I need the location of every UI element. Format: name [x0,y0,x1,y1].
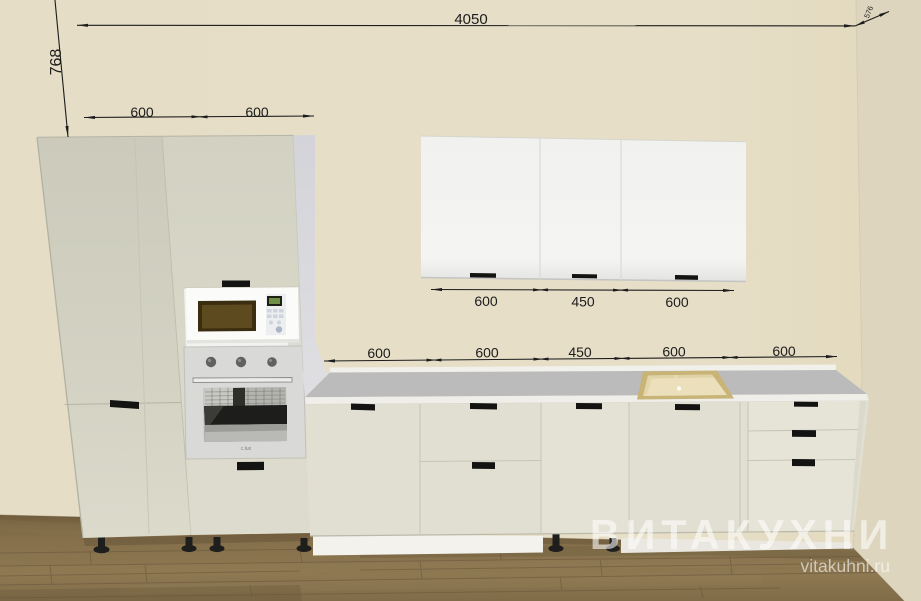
svg-text:ВИТАКУХНИ: ВИТАКУХНИ [590,511,894,558]
svg-text:600: 600 [475,344,499,360]
svg-text:600: 600 [772,343,796,359]
svg-text:600: 600 [245,104,269,120]
svg-text:450: 450 [571,294,595,310]
svg-text:768: 768 [48,49,65,76]
svg-text:c.lux: c.lux [241,446,252,452]
svg-text:vitakuhni.ru: vitakuhni.ru [801,556,891,576]
svg-text:600: 600 [130,104,154,120]
svg-text:600: 600 [474,293,498,309]
svg-text:600: 600 [662,343,686,359]
svg-text:450: 450 [568,344,592,360]
svg-text:600: 600 [665,294,689,310]
svg-text:600: 600 [367,345,391,361]
svg-text:4050: 4050 [454,11,487,28]
